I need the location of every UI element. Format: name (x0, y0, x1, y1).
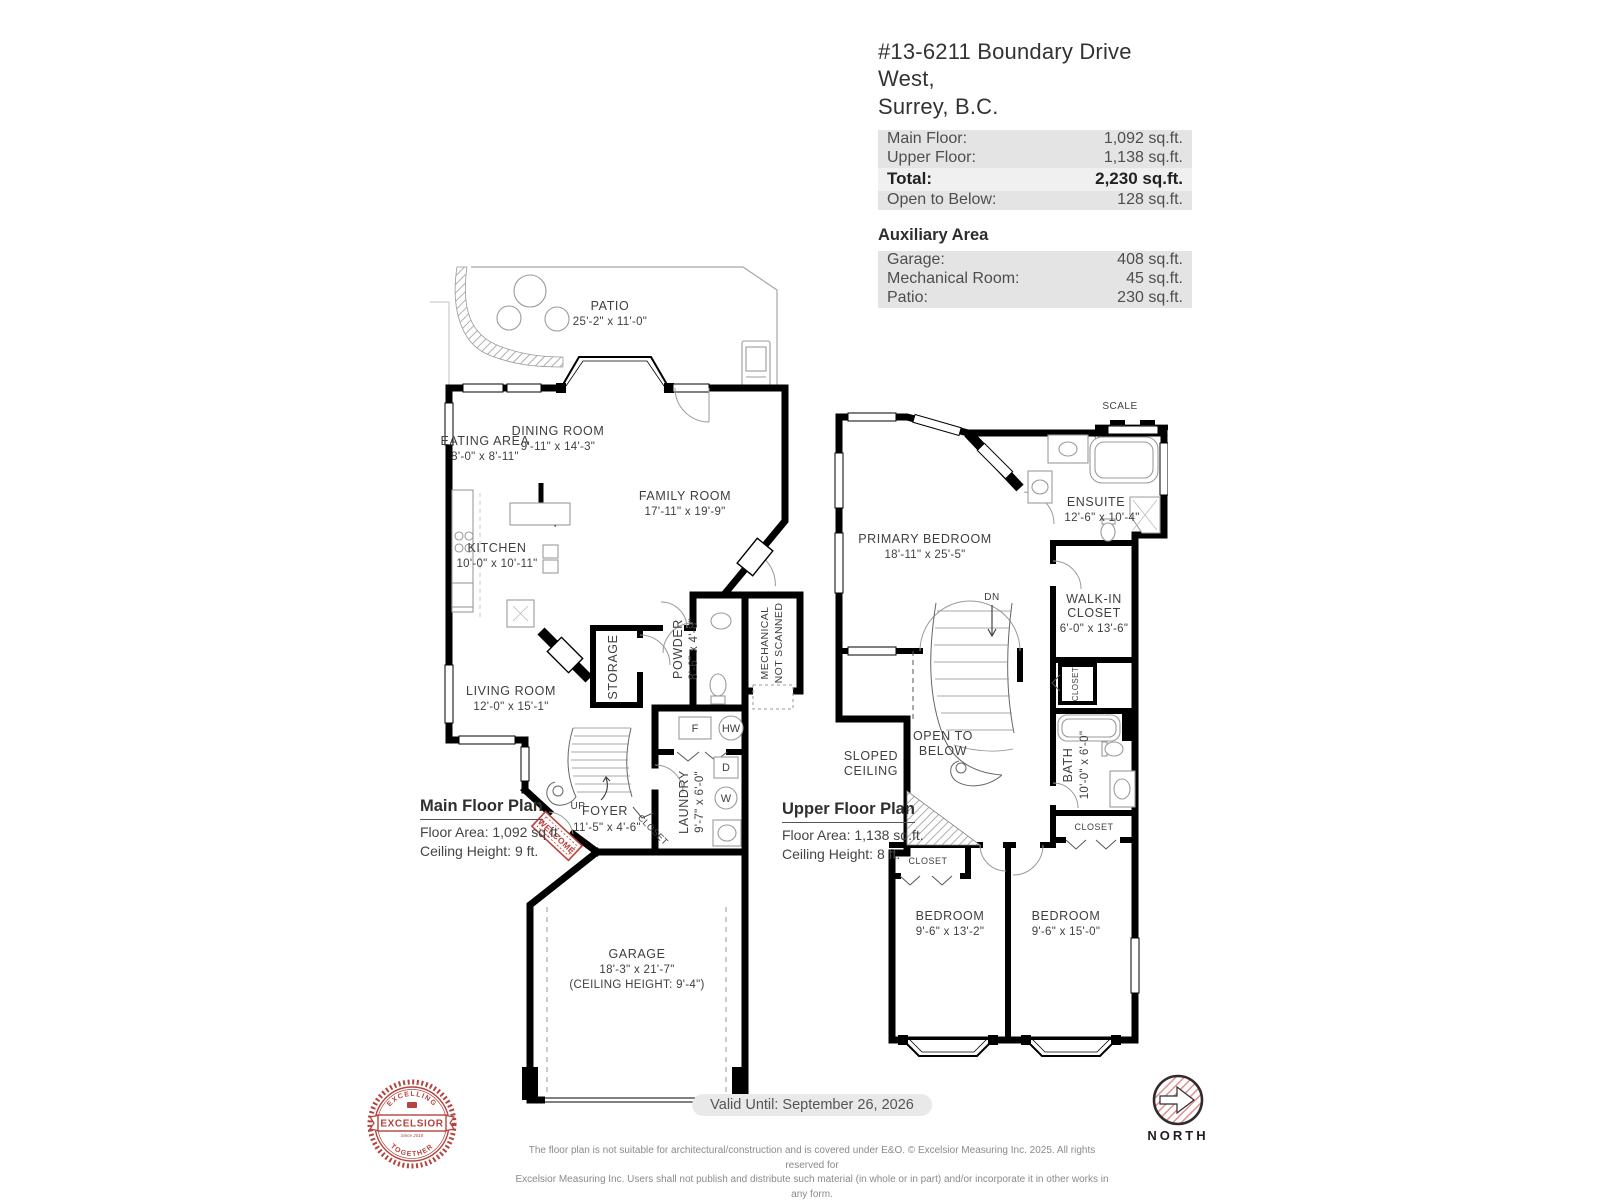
patio-door-opening (673, 384, 709, 392)
label-sloped-ceiling-1: SLOPED (844, 749, 898, 763)
room-dims-laundry: 9'-7" x 6'-0" (694, 771, 706, 833)
marker-dryer: D (722, 762, 730, 774)
row-value: 2,230 sq.ft. (1095, 169, 1183, 189)
room-label-walkin-line1: WALK-IN (1066, 592, 1122, 606)
row-value: 45 sq.ft. (1126, 270, 1183, 288)
upper-floor-plan-drawing: SCALE 0' 5' (808, 393, 1168, 1058)
header: #13-6211 Boundary Drive West, Surrey, B.… (878, 38, 1192, 308)
room-label-living-room: LIVING ROOM (466, 684, 556, 698)
room-label-bedroom-left: BEDROOM (916, 909, 985, 923)
powder-fixtures (710, 613, 731, 704)
room-label-primary-bedroom: PRIMARY BEDROOM (858, 532, 992, 546)
valid-until-badge: Valid Until: September 26, 2026 (692, 1094, 932, 1116)
disclaimer-line2: Excelsior Measuring Inc. Users shall not… (515, 1174, 1108, 1200)
room-dims-eating-area: 8'-0" x 8'-11" (451, 451, 519, 463)
row-label: Open to Below: (887, 191, 996, 209)
excelsior-since-text: Since 2018 (401, 1133, 424, 1138)
room-dims-primary-bedroom: 18'-11" x 25'-5" (884, 549, 965, 561)
page-title: #13-6211 Boundary Drive West, Surrey, B.… (878, 38, 1192, 120)
label-sloped-ceiling-2: CEILING (844, 764, 898, 778)
room-dims-ensuite: 12'-6" x 10'-4" (1064, 512, 1139, 524)
room-label-patio: PATIO (591, 299, 630, 313)
table-row: Garage: 408 sq.ft. (878, 251, 1192, 270)
room-label-powder: POWDER (671, 619, 685, 679)
auxiliary-table: Garage: 408 sq.ft. Mechanical Room: 45 s… (878, 251, 1192, 308)
staircase-down (931, 603, 1014, 786)
room-label-ensuite: ENSUITE (1067, 495, 1125, 509)
row-value: 408 sq.ft. (1117, 251, 1183, 269)
main-floor-title-block: Main Floor Plan Floor Area: 1,092 sq.ft.… (420, 795, 590, 861)
room-label-closet: CLOSET (1071, 667, 1080, 701)
north-indicator: NORTH (1146, 1072, 1210, 1146)
area-table: Main Floor: 1,092 sq.ft. Upper Floor: 1,… (878, 130, 1192, 210)
upper-floor-title-block: Upper Floor Plan Floor Area: 1,138 sq.ft… (782, 798, 952, 864)
room-dims-family-room: 17'-11" x 19'-9" (644, 506, 725, 518)
upper-floor-area: Floor Area: 1,138 sq.ft. (782, 827, 924, 843)
marker-furnace: F (692, 723, 699, 735)
room-dims-patio: 25'-2" x 11'-0" (573, 316, 647, 328)
patio-table-icon (514, 275, 546, 307)
auxiliary-area-title: Auxiliary Area (878, 226, 1192, 245)
marker-hot-water: HW (722, 723, 741, 735)
room-dims-bedroom-left: 9'-6" x 13'-2" (916, 926, 985, 938)
excelsior-banner-text: EXCELSIOR (380, 1119, 443, 1130)
address-line1: #13-6211 Boundary Drive West, (878, 38, 1192, 93)
main-floor-plan-title: Main Floor Plan (420, 795, 543, 820)
room-label-closet: CLOSET (1074, 822, 1113, 832)
ensuite-fixtures (1028, 435, 1160, 541)
table-row: Patio: 230 sq.ft. (878, 289, 1192, 308)
main-floor-plan-drawing: WELCOME PATIO 25'-2" x 11'-0" EATING ARE… (425, 255, 805, 1125)
patio-chair-icon (497, 306, 521, 330)
main-floor-labels: PATIO 25'-2" x 11'-0" EATING AREA 8'-0" … (440, 299, 785, 991)
room-dims-powder: 8'-6" x 4'-8" (688, 618, 700, 680)
row-label: Upper Floor: (887, 149, 976, 167)
table-row-total: Total: 2,230 sq.ft. (878, 168, 1192, 191)
excelsior-logo: EXCELLING TOGETHER EXCELSIOR Since 2018 (366, 1078, 458, 1170)
bay-window (556, 357, 674, 393)
room-dims-garage: 18'-3" x 21'-7" (599, 964, 674, 976)
table-row: Main Floor: 1,092 sq.ft. (878, 130, 1192, 149)
label-open-to-below-1: OPEN TO (913, 729, 973, 743)
row-label: Main Floor: (887, 130, 967, 148)
north-label: NORTH (1147, 1128, 1208, 1143)
room-label-bath: BATH (1061, 748, 1075, 783)
staircase-up (547, 728, 632, 805)
main-floor-ceiling: Ceiling Height: 9 ft. (420, 843, 538, 859)
table-row: Upper Floor: 1,138 sq.ft. (878, 149, 1192, 168)
room-note-mechanical: NOT SCANNED (773, 603, 785, 684)
disclaimer: The floor plan is not suitable for archi… (512, 1144, 1112, 1200)
room-dims-living-room: 12'-0" x 15'-1" (473, 701, 548, 713)
floorplan-page: #13-6211 Boundary Drive West, Surrey, B.… (0, 0, 1600, 1200)
room-label-kitchen: KITCHEN (467, 541, 526, 555)
room-label-family-room: FAMILY ROOM (639, 489, 731, 503)
disclaimer-line1: The floor plan is not suitable for archi… (529, 1145, 1096, 1171)
room-label-bedroom-right: BEDROOM (1032, 909, 1101, 923)
patio-chair-icon (545, 307, 569, 331)
mechanical-not-scanned-box (753, 685, 793, 709)
garage-door (545, 907, 728, 1105)
room-label-garage: GARAGE (608, 947, 665, 961)
room-dims-kitchen: 10'-0" x 10'-11" (456, 558, 537, 570)
scale-label: SCALE (1102, 401, 1137, 412)
room-dims-bedroom-right: 9'-6" x 15'-0" (1032, 926, 1101, 938)
room-label-storage: STORAGE (606, 634, 620, 699)
address-line2: Surrey, B.C. (878, 93, 1192, 120)
marker-dn: DN (984, 592, 999, 603)
row-value: 230 sq.ft. (1117, 289, 1183, 307)
room-dims-walkin: 6'-0" x 13'-6" (1060, 623, 1129, 635)
bbq-grill-icon (742, 341, 770, 387)
upper-floor-plan-title: Upper Floor Plan (782, 798, 915, 823)
marker-washer: W (721, 793, 732, 805)
row-label: Patio: (887, 289, 928, 307)
upper-floor-ceiling: Ceiling Height: 8 ft. (782, 846, 900, 862)
room-label-laundry: LAUNDRY (677, 770, 691, 834)
room-label-mechanical: MECHANICAL (759, 607, 771, 680)
room-note-garage: (CEILING HEIGHT: 9'-4") (569, 979, 704, 991)
row-value: 1,092 sq.ft. (1104, 130, 1183, 148)
room-label-walkin-line2: CLOSET (1067, 606, 1121, 620)
row-label: Mechanical Room: (887, 270, 1020, 288)
row-value: 1,138 sq.ft. (1104, 149, 1183, 167)
label-open-to-below-2: BELOW (919, 744, 967, 758)
row-label: Garage: (887, 251, 945, 269)
garage-door-post (522, 1067, 538, 1100)
room-dims-bath: 10'-0" x 6'-0" (1079, 731, 1091, 800)
row-value: 128 sq.ft. (1117, 191, 1183, 209)
room-label-dining-room: DINING ROOM (512, 424, 605, 438)
room-dims-dining-room: 9'-11" x 14'-3" (521, 441, 595, 453)
row-label: Total: (887, 169, 932, 189)
table-row: Mechanical Room: 45 sq.ft. (878, 270, 1192, 289)
excelsior-crown-icon (407, 1102, 417, 1108)
main-floor-area: Floor Area: 1,092 sq.ft. (420, 824, 562, 840)
table-row: Open to Below: 128 sq.ft. (878, 191, 1192, 210)
